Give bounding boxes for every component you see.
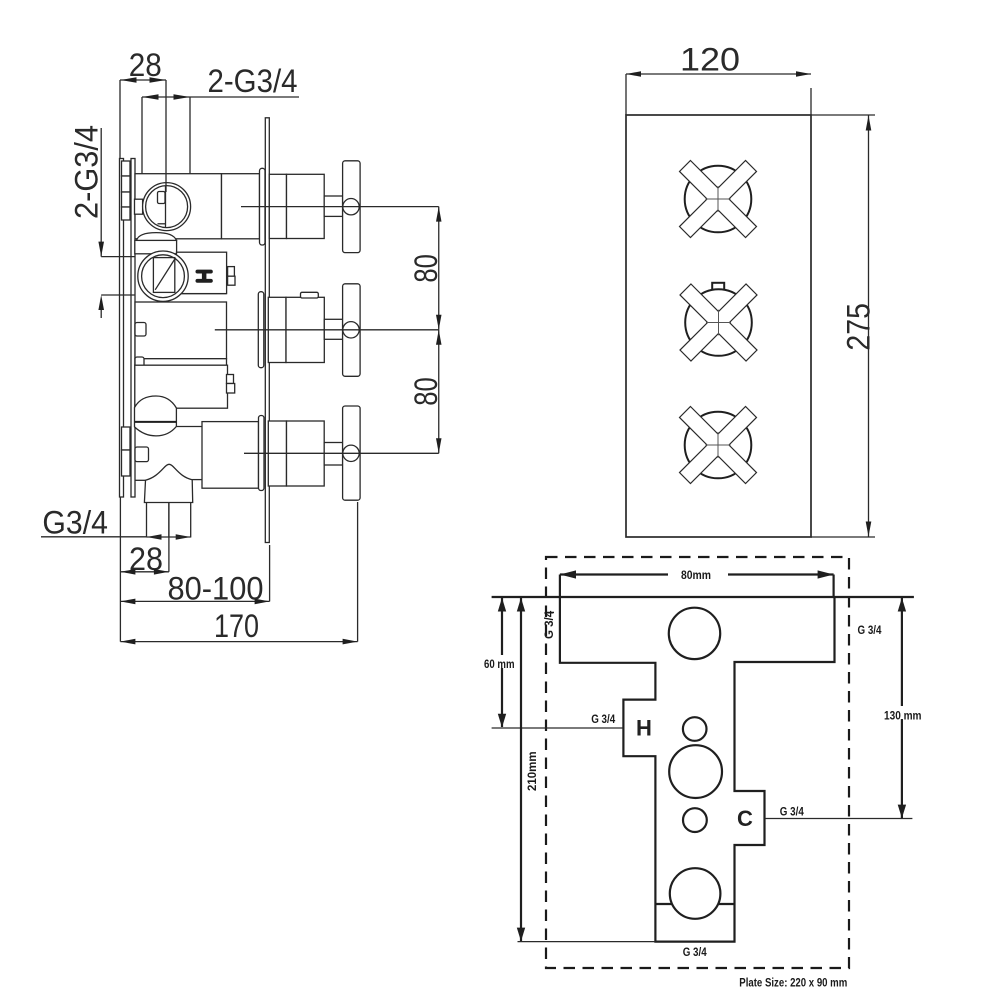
svg-text:G 3/4: G 3/4 <box>591 714 616 726</box>
svg-text:Plate Size: 220 x 90 mm: Plate Size: 220 x 90 mm <box>739 978 847 990</box>
svg-text:275: 275 <box>841 303 877 351</box>
svg-text:G 3/4: G 3/4 <box>544 610 556 639</box>
svg-text:120: 120 <box>680 42 740 78</box>
svg-text:H: H <box>636 716 652 741</box>
svg-text:C: C <box>737 806 753 831</box>
svg-text:130 mm: 130 mm <box>884 710 922 722</box>
svg-text:28: 28 <box>129 47 162 83</box>
svg-text:60 mm: 60 mm <box>484 659 515 671</box>
svg-text:G 3/4: G 3/4 <box>858 625 883 637</box>
svg-text:2-G3/4: 2-G3/4 <box>208 63 298 99</box>
svg-text:80mm: 80mm <box>681 570 711 582</box>
svg-text:G 3/4: G 3/4 <box>683 947 708 959</box>
svg-text:2-G3/4: 2-G3/4 <box>69 125 105 219</box>
svg-text:G 3/4: G 3/4 <box>780 807 805 819</box>
svg-text:170: 170 <box>214 608 259 644</box>
svg-text:G3/4: G3/4 <box>42 505 108 541</box>
svg-text:210mm: 210mm <box>527 751 539 791</box>
